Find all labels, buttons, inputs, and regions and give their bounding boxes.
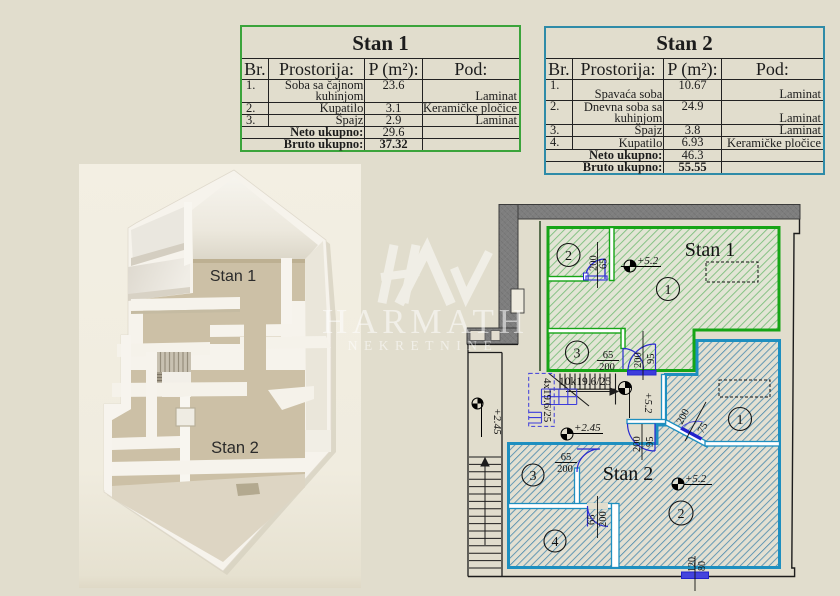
svg-text:NEKRETNINE: NEKRETNINE <box>348 338 498 353</box>
svg-text:HARMATH: HARMATH <box>322 302 524 341</box>
